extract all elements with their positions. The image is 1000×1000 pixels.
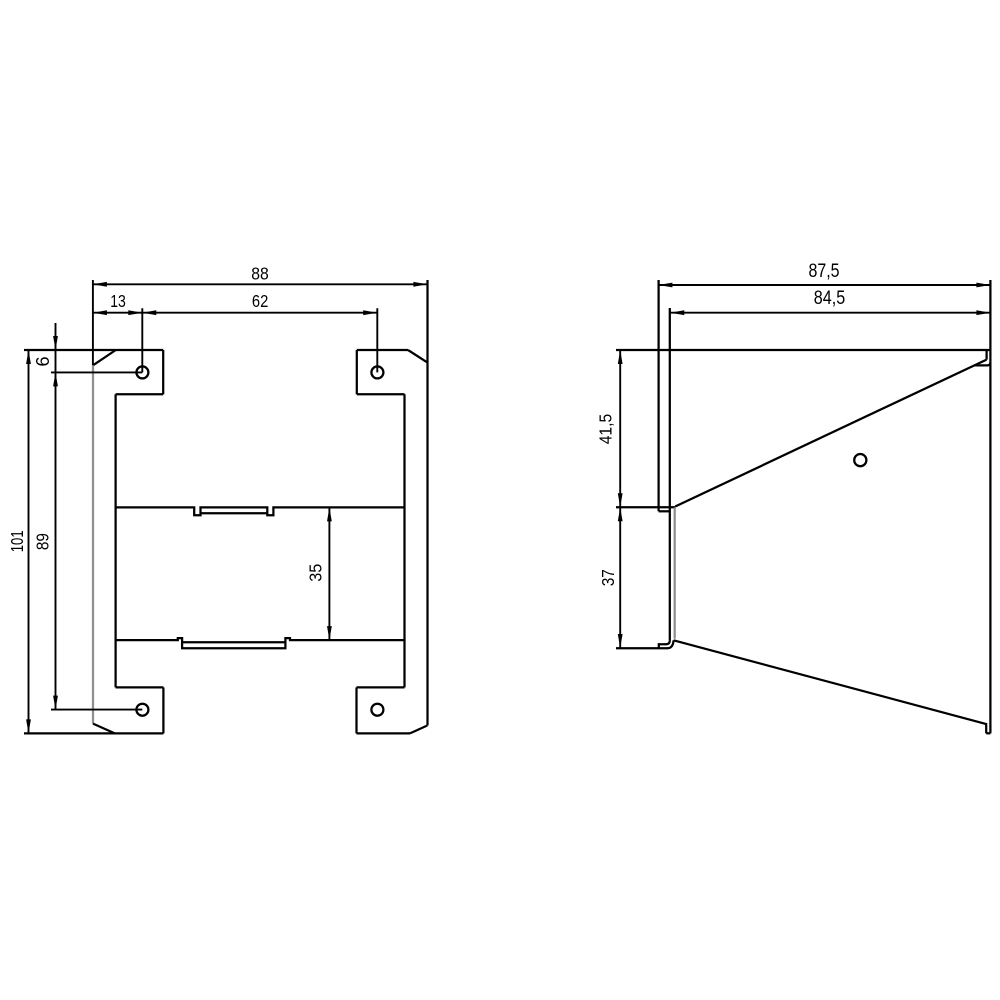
svg-text:41,5: 41,5 xyxy=(595,414,615,444)
svg-text:87,5: 87,5 xyxy=(808,260,839,282)
svg-text:88: 88 xyxy=(251,264,269,284)
svg-text:89: 89 xyxy=(33,533,53,550)
svg-text:37: 37 xyxy=(598,569,618,586)
svg-text:35: 35 xyxy=(306,564,326,582)
svg-text:6: 6 xyxy=(33,356,53,366)
svg-text:84,5: 84,5 xyxy=(814,287,846,309)
svg-text:101: 101 xyxy=(8,530,27,552)
svg-text:62: 62 xyxy=(252,292,268,312)
svg-text:13: 13 xyxy=(110,291,126,311)
